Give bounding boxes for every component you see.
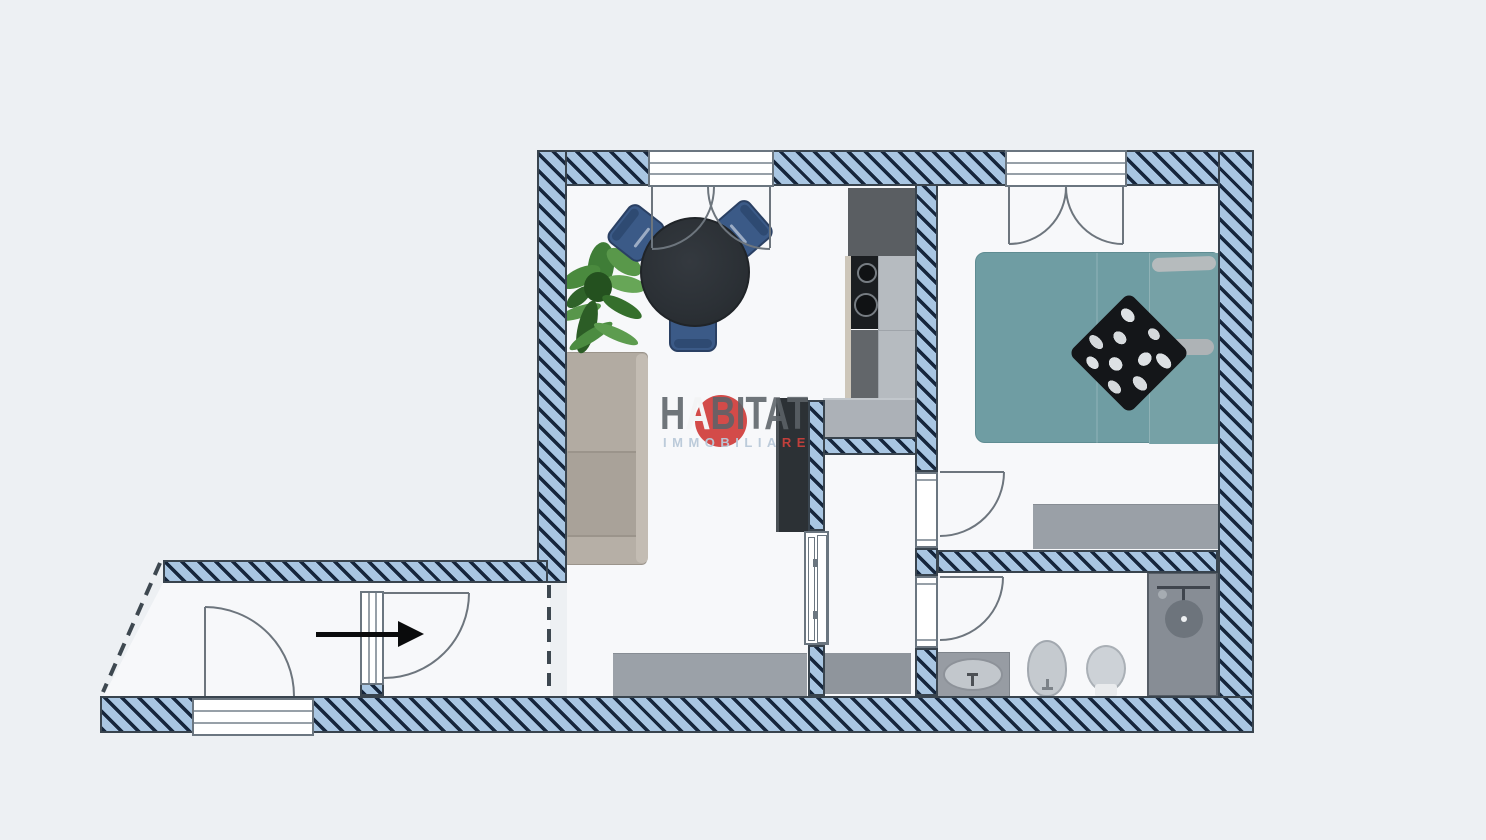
- kitchen-lower-cabinet: [851, 330, 878, 398]
- double-bed: [975, 252, 1218, 443]
- wall-exterior-top: [537, 150, 1254, 186]
- window-mullion: [1007, 162, 1125, 164]
- sofa: [563, 352, 650, 565]
- dining-table: [640, 217, 750, 327]
- kitchen-tall-cabinet: [848, 188, 915, 256]
- cooktop-burner: [854, 293, 878, 317]
- shower-enclosure: [1147, 572, 1218, 697]
- sliding-door-rail: [808, 537, 815, 641]
- wall-living-bedroom-lower: [915, 648, 938, 696]
- cooktop-burner: [857, 263, 877, 283]
- counter-seam: [879, 330, 915, 331]
- door-jamb-line: [917, 539, 936, 541]
- bidet: [1027, 640, 1067, 697]
- entrance-arrow-shaft: [316, 632, 400, 637]
- window-mullion: [194, 722, 312, 724]
- wardrobe-column: [776, 398, 808, 532]
- door-jamb-line: [368, 593, 370, 683]
- sliding-door-tab: [813, 559, 818, 567]
- wall-living-bedroom-upper: [915, 184, 938, 472]
- door-jamb-line: [917, 479, 936, 481]
- window-bedroom: [1005, 150, 1127, 187]
- door-frame-bathroom: [915, 576, 938, 648]
- wall-kitchen-anteroom: [822, 437, 917, 455]
- wall-exterior-right: [1218, 150, 1254, 733]
- sink-faucet-icon: [967, 673, 978, 676]
- floor-corridor: [100, 583, 550, 697]
- door-frame-entrance: [360, 591, 384, 685]
- bed-pillow: [1152, 256, 1216, 272]
- sofa-armrest: [563, 536, 647, 565]
- toilet: [1086, 645, 1126, 692]
- door-window-corridor: [192, 698, 314, 736]
- door-jamb-line: [375, 593, 377, 683]
- window-mullion: [650, 173, 772, 175]
- wall-bedroom-bathroom: [937, 550, 1218, 573]
- shower-knob: [1158, 590, 1167, 599]
- kitchen-counter-corner: [823, 398, 915, 437]
- window-mullion: [194, 710, 312, 712]
- bedroom-dresser: [1033, 504, 1218, 549]
- living-sideboard: [613, 653, 807, 696]
- door-jamb-line: [917, 639, 936, 641]
- sliding-door-panel: [817, 535, 827, 643]
- door-frame-bedroom: [915, 472, 938, 548]
- entrance-arrow-icon: [398, 621, 424, 647]
- wall-corridor-top: [163, 560, 548, 583]
- kitchen-counter-right: [878, 256, 915, 398]
- wall-living-anteroom-lower: [808, 645, 825, 696]
- plant-leaf: [599, 290, 644, 323]
- shower-drain-dot: [1181, 616, 1187, 622]
- floor-plan-canvas: HABITAT IMMOBILIARE: [0, 0, 1486, 840]
- bathroom-vanity-sink: [936, 652, 1010, 697]
- wall-living-bedroom-mid: [915, 548, 938, 576]
- chair-backrest: [674, 339, 712, 348]
- window-mullion: [1007, 173, 1125, 175]
- sofa-edge-highlight: [636, 354, 648, 563]
- window-living-room: [648, 150, 774, 187]
- sliding-door-living-anteroom: [804, 531, 829, 645]
- anteroom-cabinet: [823, 653, 911, 694]
- wall-exterior-left: [537, 150, 567, 583]
- sliding-door-tab: [813, 611, 818, 619]
- kitchen-cooktop: [849, 256, 878, 329]
- window-mullion: [650, 162, 772, 164]
- door-jamb-line: [917, 583, 936, 585]
- bidet-faucet-icon: [1042, 687, 1053, 690]
- wall-living-anteroom-upper: [808, 400, 825, 531]
